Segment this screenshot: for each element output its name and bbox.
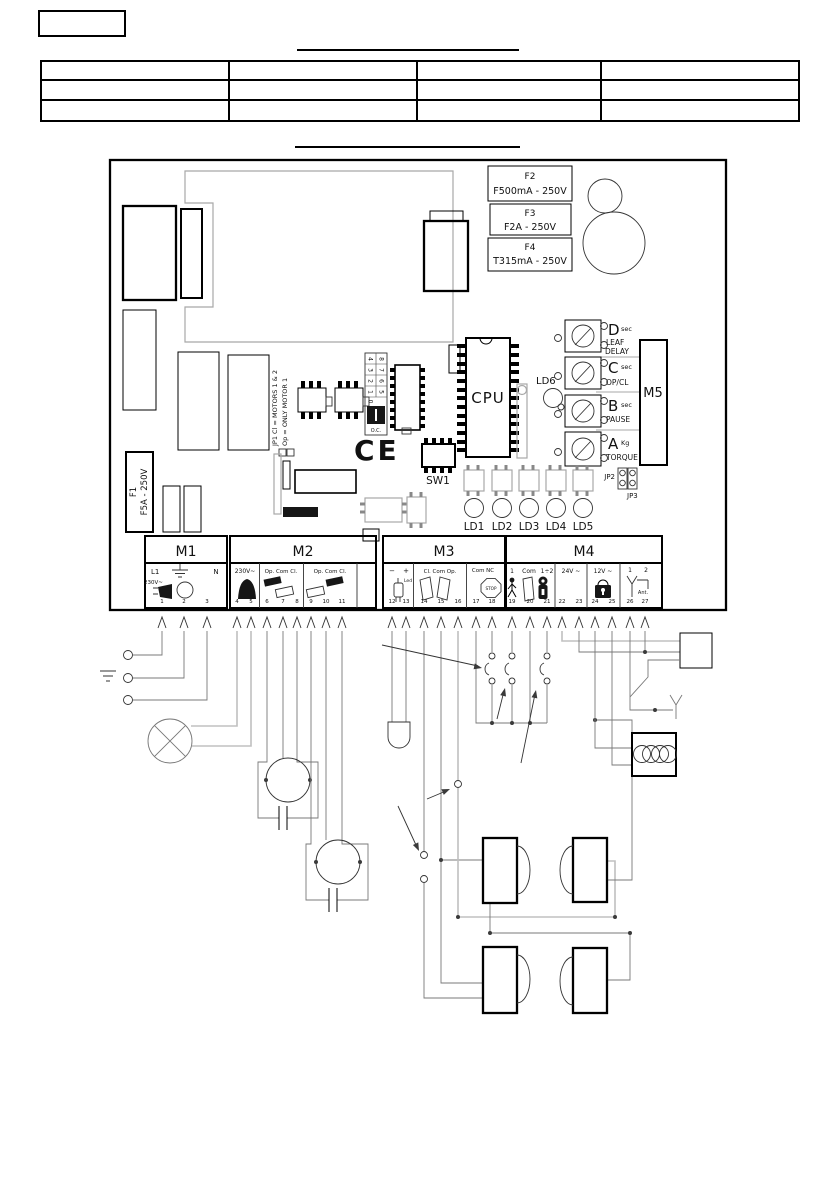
heatsink-outline [185,171,453,342]
fuse-f1: F1 F5A - 250V [126,452,153,532]
key-switch-icon [539,577,548,600]
transformer-lamination [181,209,202,298]
photocell-wiring [439,631,632,983]
pin-number: 25 [609,599,616,605]
trimmer-unit: Kg [621,439,629,447]
pin-number: 2 [182,599,186,605]
fuse-f4: F4 T315mA - 250V [488,238,572,271]
lock-icon [595,580,611,598]
relay-small-1 [163,486,180,532]
optocoupler [573,465,593,496]
pin-number: 23 [576,599,583,605]
wiring-diagram [100,631,712,1013]
terminal-arrows [158,617,649,628]
sw1-dip-switch: SW1 [422,438,455,487]
transformer-body [123,206,176,300]
terminal-m4: M4 1 Com 1÷2 24V ~ 12V ~ [506,536,662,608]
fuse-rating: F2A - 250V [504,222,557,233]
pin-number: 3 [205,599,209,605]
m4-s1-n1: 1 [510,568,514,575]
resistor-vertical [274,454,281,514]
capacitor-block [123,310,156,410]
optocoupler [492,465,512,496]
jp1-label-1: JP1 Cl = MOTORS 1 & 2 [271,370,279,447]
m2-s1-label: 230V~ [235,568,256,575]
door-switch-icon [523,577,534,601]
pin-number: 16 [455,599,462,605]
ic-small-gray-2 [407,492,426,528]
ant-label: Ant. [638,590,649,596]
dial-digit: 3 [367,368,374,372]
motor2-symbol [306,631,368,912]
led-ld6: LD6 [536,376,564,410]
photocell-tx1 [483,838,530,903]
resistor-pack [449,345,460,373]
pedestrian-icon [508,578,516,597]
m4-s3-label: 12V ~ [594,568,613,575]
trimmer-letter: D [608,321,620,339]
motor-icon [264,576,294,597]
earth-icon [172,564,188,577]
dial-digit: 7 [378,368,385,372]
pin-number: 10 [323,599,330,605]
jp1-jumper: JP1 Cl = MOTORS 1 & 2 Op = ONLY MOTOR 1 [271,370,294,456]
sw1-label: SW1 [426,475,450,487]
trimmer-letter: B [608,397,618,415]
dial-digit: 5 [378,390,385,394]
optocoupler [464,465,484,496]
ic-dip-vertical [390,365,425,434]
led-tiny-label: Led [404,578,412,584]
cpu-label: CPU [471,389,505,407]
contact-points [421,631,484,998]
ic-dip-1 [298,381,332,419]
pin-number: 13 [403,599,410,605]
photocell-rx1 [560,838,607,902]
m1-voltage: 230V~ [144,580,163,586]
jumper-bar [283,507,318,517]
capacitor-icon [279,806,287,830]
pin-number: 24 [592,599,599,605]
pin-number: 14 [421,599,428,605]
pin-number: 6 [265,599,269,605]
m3-label: M3 [434,544,455,560]
pin-number: 26 [627,599,634,605]
jp2-jp3-jumpers: JP2 JP3 [603,468,638,500]
ce-mark: CE [354,434,400,467]
trimmer-unit: sec [621,325,632,333]
led-label: LD5 [573,521,594,533]
pin-number: 21 [544,599,551,605]
led-label: LD1 [464,521,485,533]
trimmer-func: PAUSE [606,415,630,424]
motor-icon [306,576,343,597]
photocell-rx2 [560,948,607,1013]
relay-low [295,470,356,493]
jp1-label-2: Op = ONLY MOTOR 1 [281,378,289,446]
m2-label: M2 [293,544,314,560]
terminal-m3: M3 − + Led Cl. Com Op. Com NC STOP 12 13… [383,536,505,608]
trimmer-func: TORQUE [605,453,638,462]
relay-1 [178,352,219,450]
m4-label: M4 [574,544,595,560]
trimmer-func: LEAF [606,338,624,347]
ld6-label: LD6 [536,376,556,387]
terminal-m2: M2 230V~ Op. Com Cl. Op. Com Cl. 4 5 6 7… [230,536,376,608]
fuse-rating: F500mA - 250V [493,186,567,197]
fuse-name: F2 [525,172,536,182]
fuse-name: F4 [525,243,536,253]
pin-number: 12 [389,599,396,605]
bracket-strip [430,211,463,221]
pushbutton-symbols [476,631,550,725]
minus-label: − [389,567,395,575]
photocell-tx2 [483,947,530,1013]
m2-s3-label: Op. Com Cl. [314,569,347,575]
terminal-m1: M1 L1 N 230V~ 1 2 3 [144,536,227,608]
pin-number: 9 [309,599,313,605]
board-diagram: F2 F500mA - 250V F3 F2A - 250V F4 T315mA… [0,0,840,1190]
motor1-symbol [258,631,318,830]
relay-small-2 [184,486,201,532]
dial-digit: 4 [367,357,374,361]
fuse-rating: T315mA - 250V [492,256,567,267]
receiver-box [680,633,712,668]
m4-s1-n2: Com [522,568,536,575]
capacitor-round-small [588,179,622,213]
dial-selector: 4 3 2 1 0 8 7 6 5 O.C. [365,353,387,435]
pin-number: 15 [438,599,445,605]
fuse-f2: F2 F500mA - 250V [488,166,572,201]
dial-digit: 1 [367,390,374,394]
m4-s1-n3: 1÷2 [541,568,554,575]
plus-label: + [403,567,409,575]
pointer-arrows [382,645,537,851]
toroid-large [583,212,645,274]
trimmer-a: A Kg TORQUE [555,432,639,466]
m1-label: M1 [176,544,197,560]
pin-number: 7 [281,599,285,605]
m4-s4-n1: 1 [628,567,632,574]
lock-coil [595,631,677,776]
ic-small-gray [360,498,407,522]
led-row: LD1 LD2 LD3 LD4 LD5 [464,499,594,534]
fuse-name: F3 [525,209,536,219]
led-label: LD4 [546,521,567,533]
dial-digit: 8 [378,357,385,361]
trimmer-d: D sec LEAF DELAY [555,320,641,357]
jp2-label: JP2 [603,473,615,481]
ic-dip-2 [335,381,369,419]
optocoupler [546,465,566,496]
pin-number: 5 [249,599,253,605]
m2-s2-label: Op. Com Cl. [265,569,298,575]
manual-page: F2 F500mA - 250V F3 F2A - 250V F4 T315mA… [0,0,840,1190]
relay-2 [228,355,269,450]
connector-strip [517,384,527,458]
dial-digit: 0 [367,400,374,404]
trimmer-letter: C [608,359,618,377]
switch-icon [420,577,450,600]
trimmer-unit: sec [621,363,632,371]
receiver-antenna [562,631,712,719]
mains-terminals [100,631,207,705]
optocoupler [519,465,539,496]
n-label: N [213,568,218,576]
pin-number: 27 [642,599,649,605]
pin-number: 4 [235,599,239,605]
trimmer-letter: A [608,435,619,453]
m4-s2-label: 24V ~ [562,568,581,575]
pin-number: 1 [160,599,164,605]
ground-icon [100,671,116,681]
stop-icon: STOP [481,578,501,597]
m5-label: M5 [643,386,663,401]
dial-digit: 2 [367,379,374,383]
heatsink-module [424,221,468,291]
trimmer-c: C sec OP/CL [555,357,641,392]
fuse-name: F1 [129,487,139,497]
pin-number: 18 [489,599,496,605]
pin-number: 19 [509,599,516,605]
flashing-lamp-symbol [148,631,251,763]
jp3-label: JP3 [626,492,638,500]
pin-number: 17 [473,599,480,605]
m3-s2-label: Cl. Com Op. [424,569,457,575]
pin-number: 22 [559,599,566,605]
fuse-rating: F5A - 250V [140,469,150,516]
stop-text: STOP [485,586,497,591]
antenna-symbol [670,695,682,719]
trimmer-b: B sec PAUSE [555,395,641,430]
capacitor-icon [329,888,337,912]
m4-s4-n2: 2 [644,567,648,574]
m3-s3-label: Com NC [472,568,494,574]
l1-label: L1 [151,568,159,576]
fuse-f3: F3 F2A - 250V [490,204,571,235]
trimmer-func: OP/CL [606,378,629,387]
led-label: LD2 [492,521,513,533]
lamp-icon [238,579,256,599]
led-label: LD3 [519,521,540,533]
resistor-vertical [283,461,290,489]
trimmer-func: DELAY [605,347,629,356]
pin-number: 8 [295,599,299,605]
trimmer-unit: sec [621,401,632,409]
pin-number: 11 [339,599,346,605]
optocoupler-row [464,465,593,496]
cpu-chip: CPU [457,338,519,457]
pin-number: 20 [527,599,534,605]
m5-connector: M5 [640,340,667,465]
dial-digit: 6 [378,379,385,383]
